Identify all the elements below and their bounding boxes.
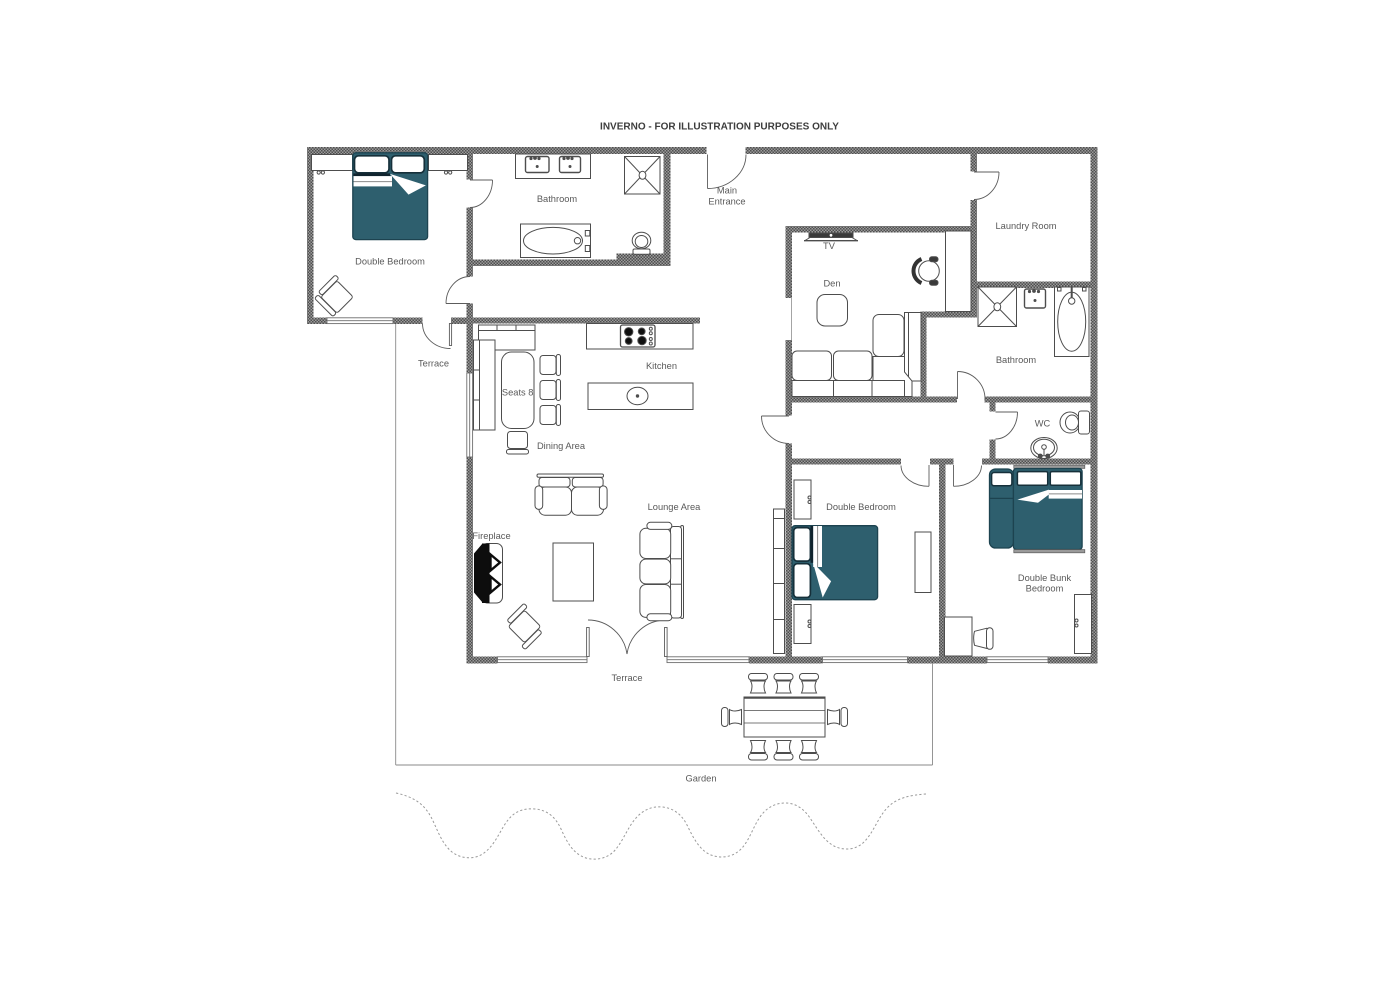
svg-text:Bathroom: Bathroom xyxy=(537,194,578,204)
svg-text:Dining Area: Dining Area xyxy=(537,441,586,451)
svg-text:WC: WC xyxy=(1035,419,1051,429)
svg-text:Bedroom: Bedroom xyxy=(1026,584,1064,594)
svg-text:Fireplace: Fireplace xyxy=(472,531,510,541)
svg-text:Entrance: Entrance xyxy=(708,197,745,207)
svg-text:Double Bedroom: Double Bedroom xyxy=(826,502,896,512)
svg-text:TV: TV xyxy=(823,241,836,251)
svg-text:Kitchen: Kitchen xyxy=(646,361,677,371)
svg-text:Lounge Area: Lounge Area xyxy=(648,502,702,512)
svg-text:Seats 8: Seats 8 xyxy=(502,388,534,398)
svg-text:Den: Den xyxy=(823,279,840,289)
svg-text:Double Bunk: Double Bunk xyxy=(1018,573,1072,583)
svg-text:Double Bedroom: Double Bedroom xyxy=(355,257,425,267)
svg-text:INVERNO - FOR ILLUSTRATION PUR: INVERNO - FOR ILLUSTRATION PURPOSES ONLY xyxy=(600,121,839,132)
svg-text:Garden: Garden xyxy=(685,774,716,784)
svg-text:Terrace: Terrace xyxy=(612,673,643,683)
svg-text:Bathroom: Bathroom xyxy=(996,355,1037,365)
svg-text:Main: Main xyxy=(717,186,737,196)
svg-text:Laundry Room: Laundry Room xyxy=(996,221,1057,231)
svg-text:Terrace: Terrace xyxy=(418,359,449,369)
